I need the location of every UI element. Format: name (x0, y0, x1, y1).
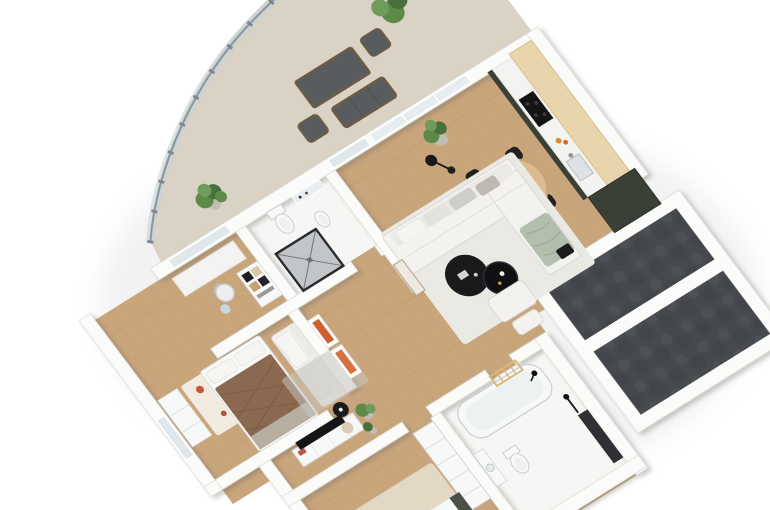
floor-plan-stage (0, 0, 770, 510)
floor-plan-svg (0, 0, 770, 510)
